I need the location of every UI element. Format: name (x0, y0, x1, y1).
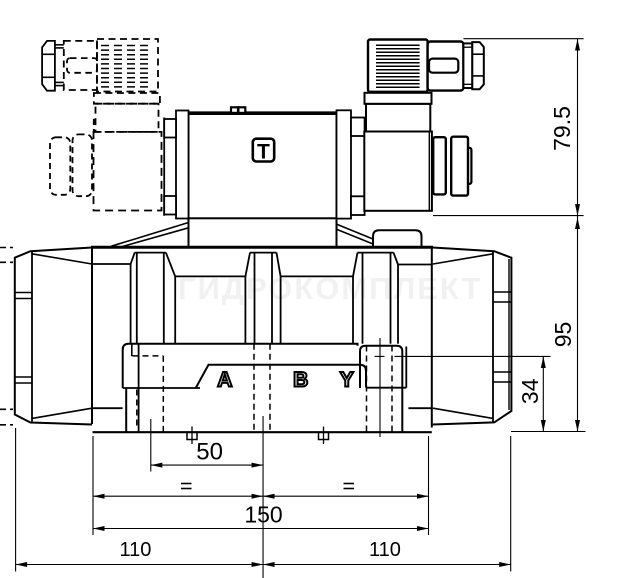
svg-text:110: 110 (369, 539, 401, 561)
svg-text:B: B (293, 369, 308, 392)
svg-text:150: 150 (244, 502, 282, 528)
svg-text:T: T (257, 140, 270, 163)
svg-text:95: 95 (550, 322, 576, 348)
svg-text:110: 110 (120, 539, 152, 561)
svg-text:34: 34 (517, 378, 543, 404)
svg-text:50: 50 (196, 439, 223, 466)
svg-text:A: A (217, 369, 232, 392)
svg-text:Y: Y (340, 369, 354, 392)
svg-text:79.5: 79.5 (549, 106, 575, 151)
